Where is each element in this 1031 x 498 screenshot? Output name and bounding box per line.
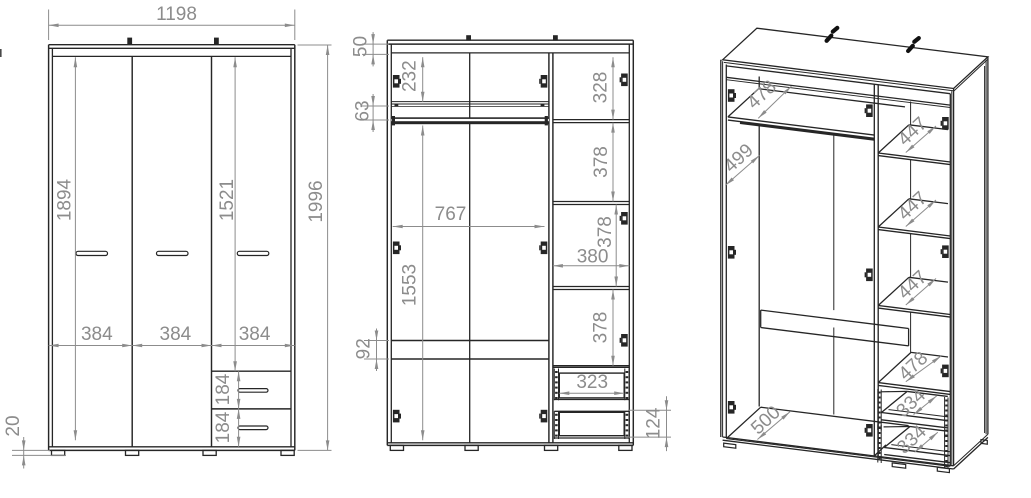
svg-text:447: 447 [894,267,932,304]
svg-text:1198: 1198 [156,4,197,25]
svg-text:20: 20 [3,415,24,436]
svg-text:447: 447 [894,188,932,225]
svg-text:767: 767 [435,204,467,225]
svg-text:384: 384 [160,324,192,345]
svg-text:378: 378 [595,216,616,248]
svg-text:447: 447 [894,113,932,150]
svg-text:184: 184 [213,373,234,405]
svg-text:380: 380 [577,246,609,267]
svg-text:500: 500 [747,402,785,439]
svg-text:384: 384 [239,324,271,345]
svg-text:378: 378 [591,312,612,344]
svg-text:323: 323 [576,372,608,393]
svg-text:50: 50 [351,36,372,57]
svg-text:63: 63 [352,100,373,121]
svg-text:1521: 1521 [217,179,238,221]
svg-text:478: 478 [895,348,933,385]
svg-text:1996: 1996 [306,180,327,222]
svg-text:328: 328 [591,72,612,104]
svg-text:1553: 1553 [399,264,420,306]
svg-text:1894: 1894 [54,178,75,221]
svg-text:334: 334 [893,385,931,422]
svg-text:378: 378 [591,146,612,178]
svg-text:92: 92 [354,338,375,359]
svg-text:124: 124 [643,407,664,439]
svg-text:384: 384 [81,324,113,345]
svg-text:232: 232 [400,60,421,92]
svg-text:184: 184 [213,411,234,443]
